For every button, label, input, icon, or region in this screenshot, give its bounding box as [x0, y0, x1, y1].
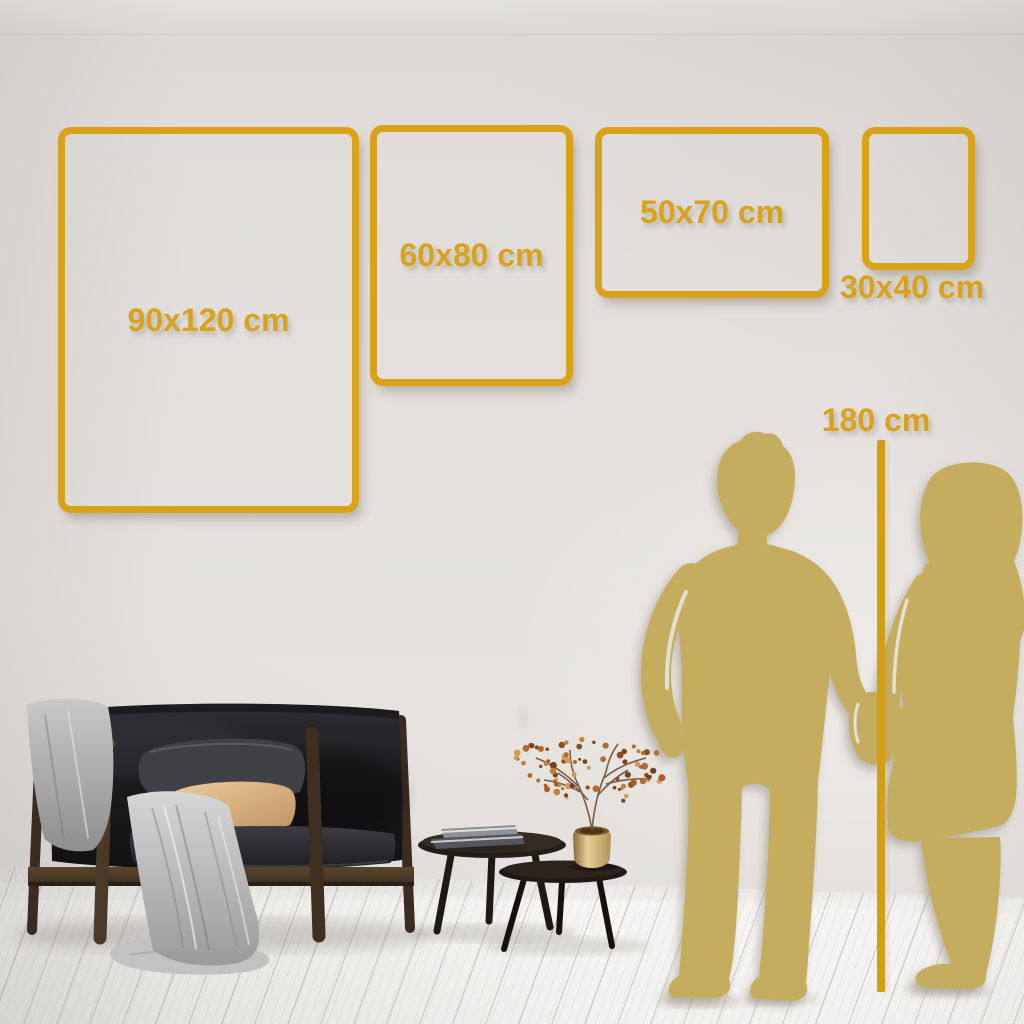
size-frame-60x80: 60x80 cm [370, 125, 573, 386]
table-top-large [418, 832, 566, 858]
brass-vase [573, 826, 611, 868]
held-hands [849, 692, 906, 765]
size-frame-90x120: 90x120 cm [58, 127, 359, 513]
silhouette-gaps [667, 592, 907, 742]
table-top-small [499, 861, 627, 883]
sofa-pillow-gray [139, 739, 306, 801]
height-marker-label: 180 cm [786, 402, 966, 439]
size-frame-90x120-label: 90x120 cm [128, 302, 290, 339]
vase-plant [536, 744, 650, 830]
size-frame-30x40 [862, 127, 975, 270]
size-frame-60x80-label: 60x80 cm [399, 237, 543, 274]
size-frame-50x70-label: 50x70 cm [640, 194, 784, 231]
book-stack [431, 834, 525, 849]
wall-smudge [518, 706, 528, 730]
sofa-seat-cushion [130, 826, 395, 870]
size-guide-scene: 90x120 cm 60x80 cm 50x70 cm 30x40 cm 180… [0, 0, 1024, 1024]
ceiling-strip [0, 0, 1024, 35]
size-frame-50x70: 50x70 cm [595, 127, 829, 298]
plant-berries [514, 737, 666, 803]
size-frame-30x40-label: 30x40 cm [822, 269, 1002, 306]
throw-blanket-arm [27, 699, 113, 852]
sofa-pillow-tan [168, 782, 296, 834]
